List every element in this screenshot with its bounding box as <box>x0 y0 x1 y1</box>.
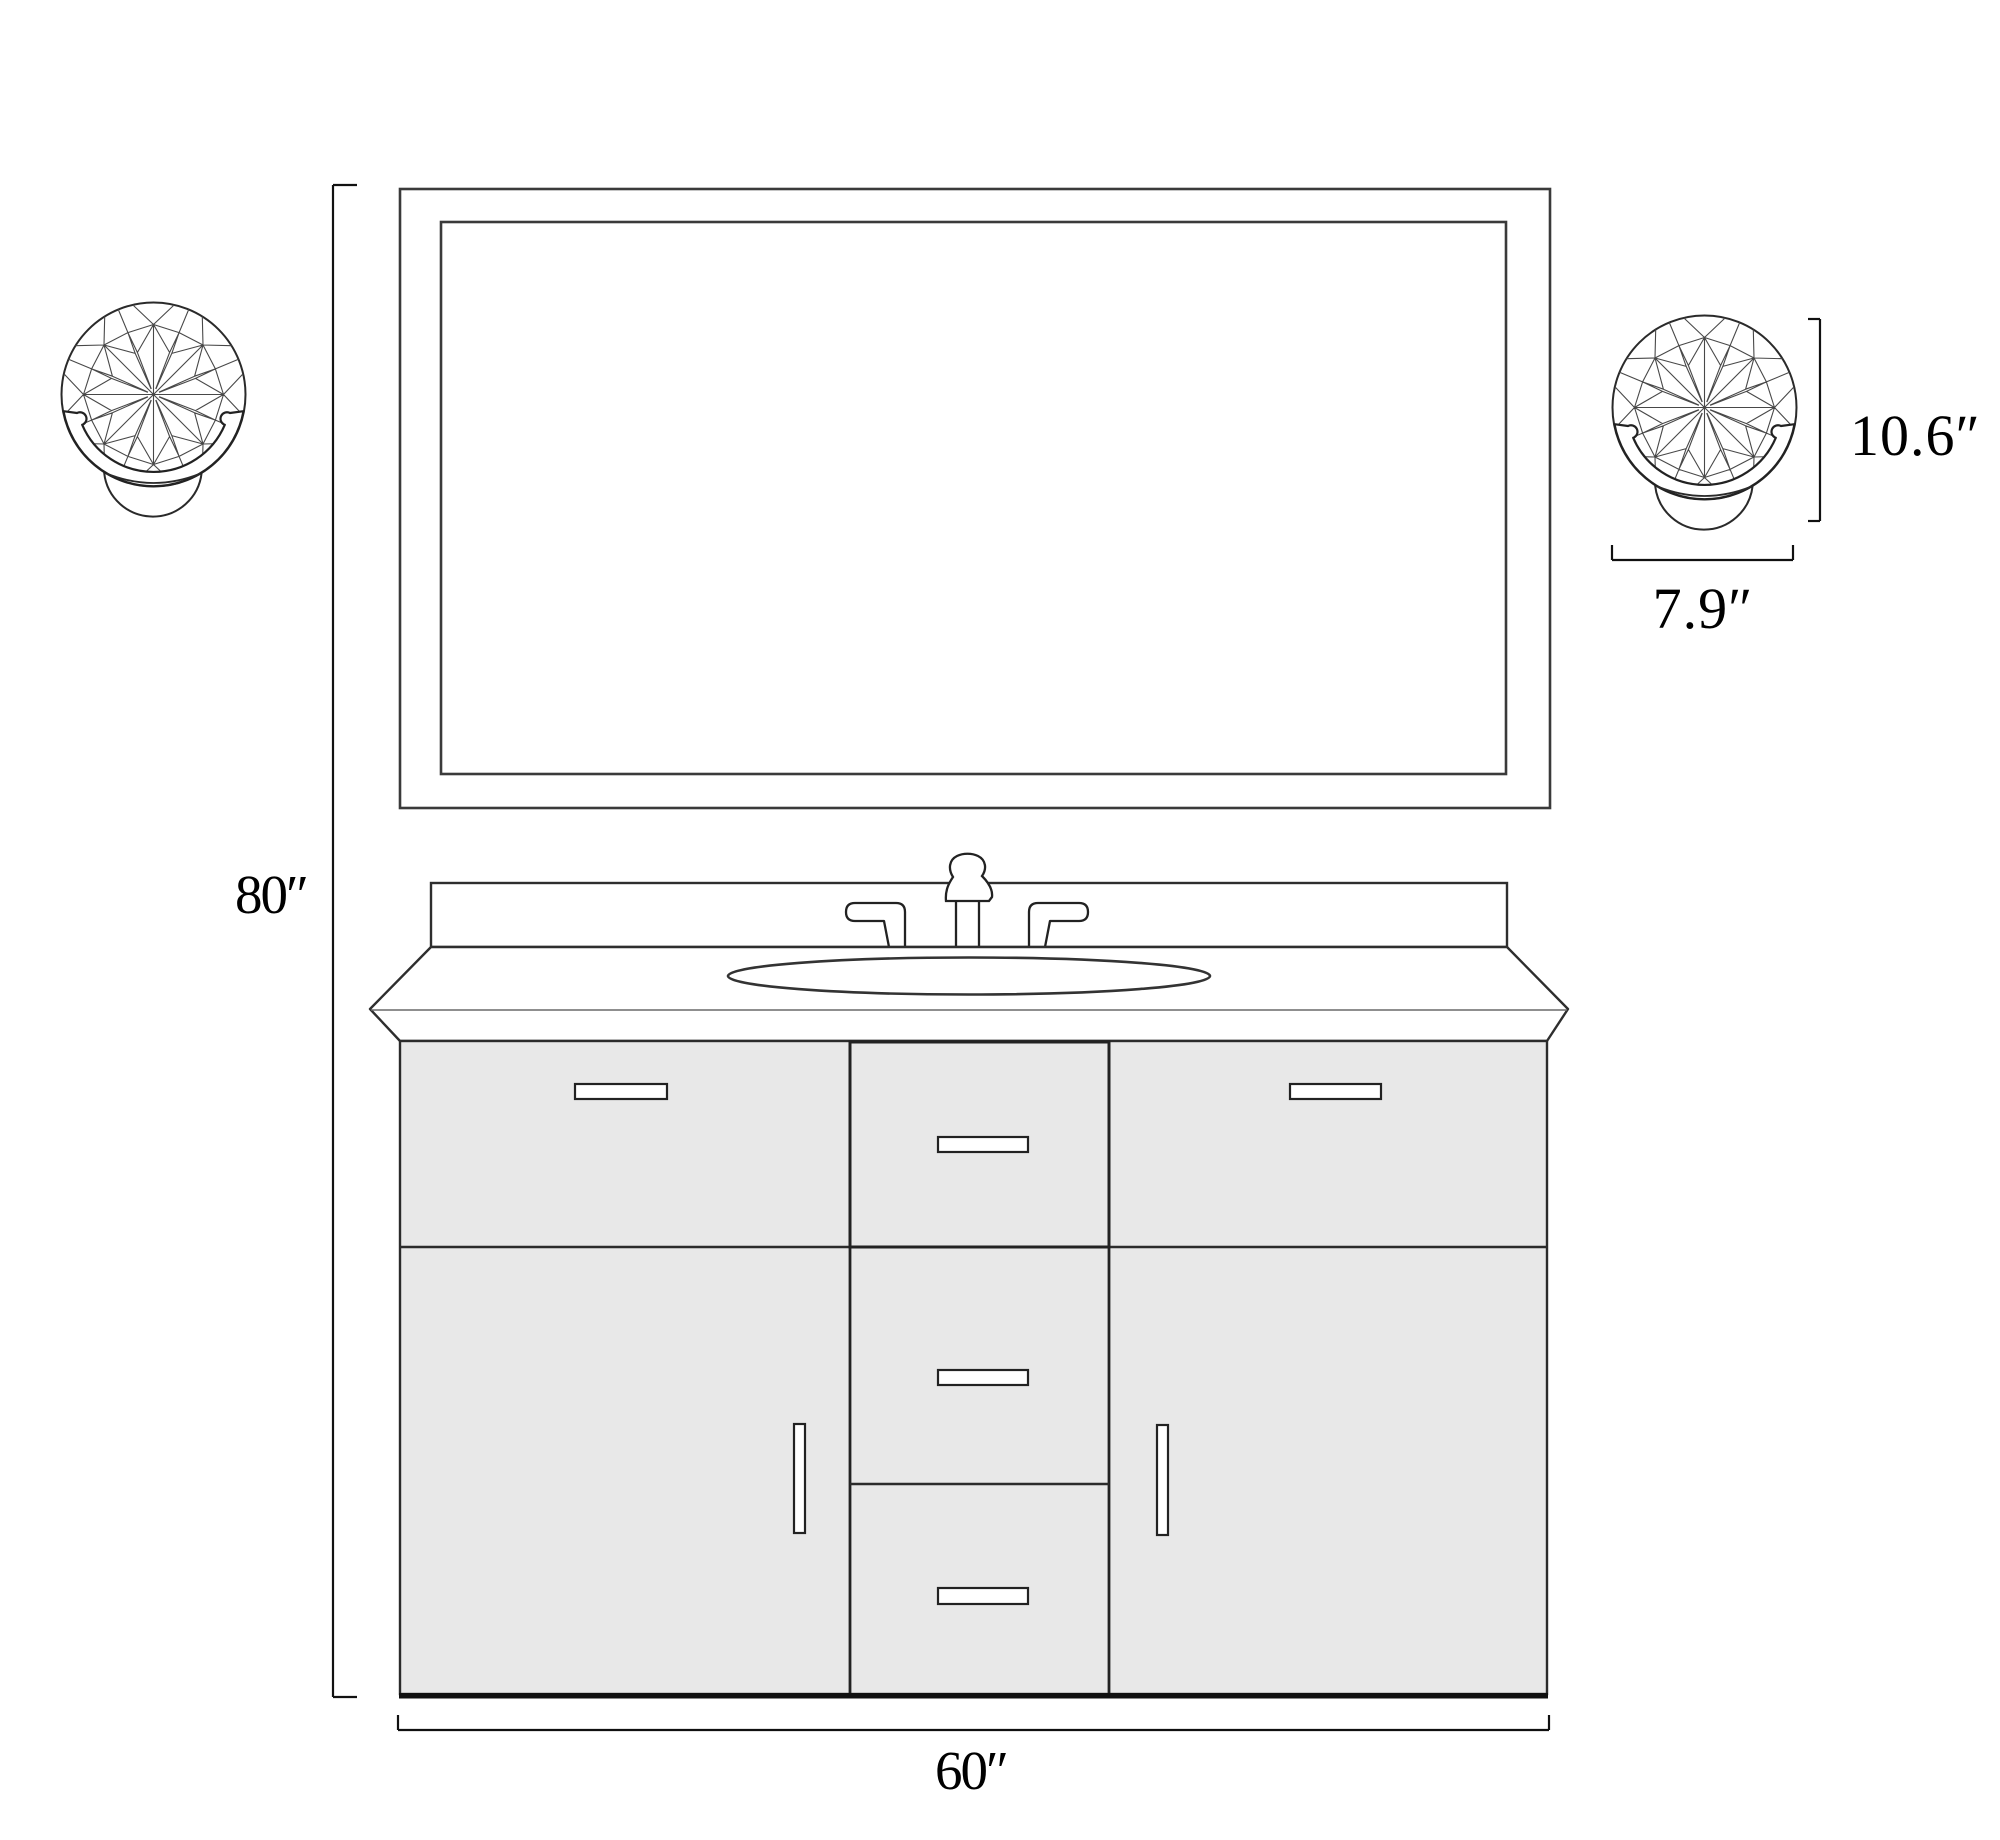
svg-text:60″: 60″ <box>935 1740 1007 1801</box>
svg-text:10.6″: 10.6″ <box>1850 403 1981 468</box>
svg-text:80″: 80″ <box>235 864 307 925</box>
svg-text:7.9″: 7.9″ <box>1653 576 1754 641</box>
